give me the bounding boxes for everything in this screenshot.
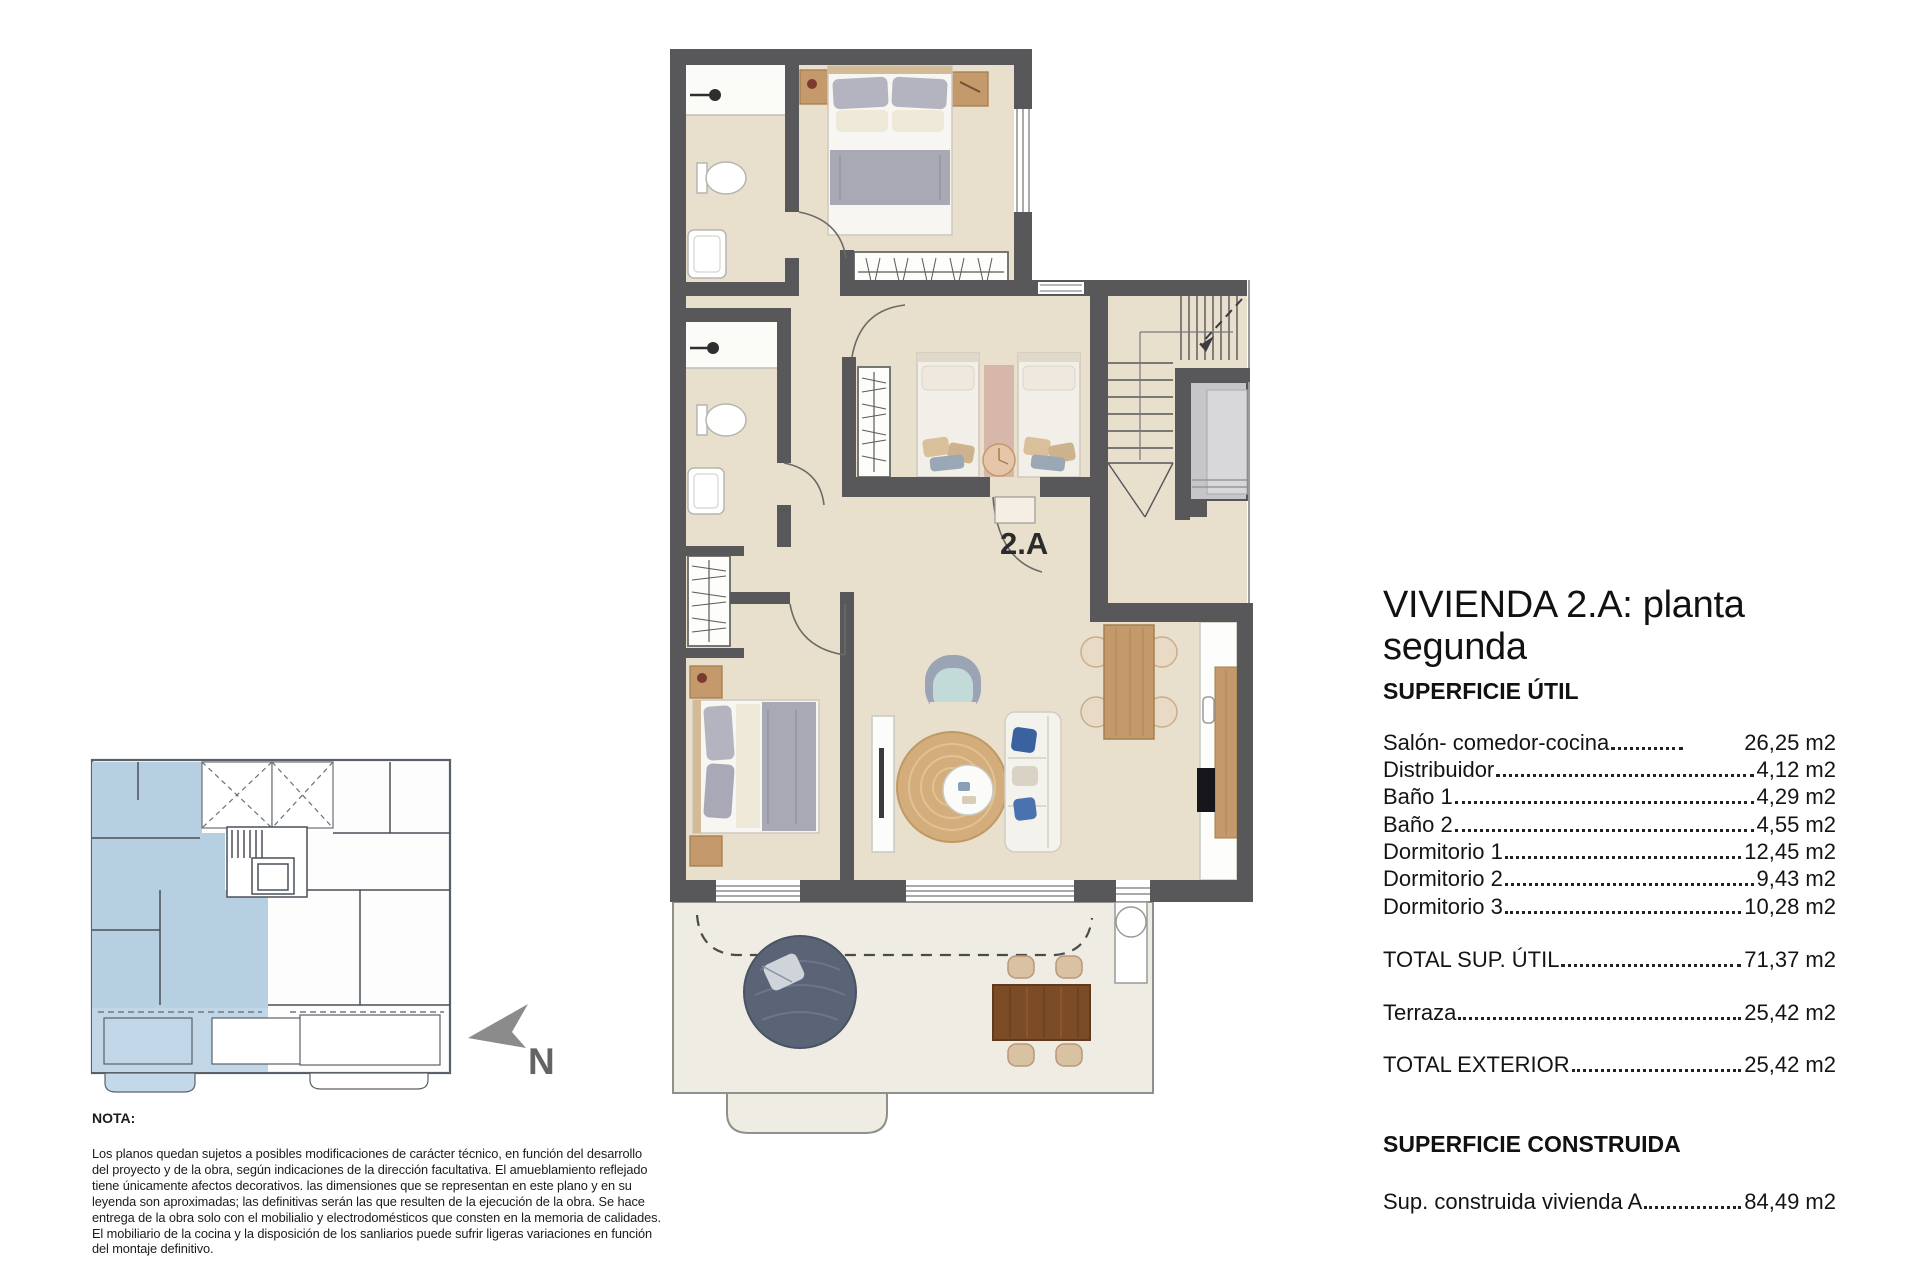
room-area-label: Baño 1 <box>1383 784 1453 810</box>
planter-box <box>1115 902 1147 983</box>
wardrobe-bedroom-2 <box>858 367 890 477</box>
glass-door-kitchen <box>1116 882 1150 900</box>
note-body: Los planos quedan sujetos a posibles mod… <box>92 1146 752 1257</box>
leader-dots <box>1505 856 1741 859</box>
room-area-value: 12,45 m2 <box>1744 839 1836 865</box>
room-area-list: Salón- comedor-cocina26,25 m2Distribuido… <box>1383 729 1836 920</box>
wicker-chair <box>1056 1044 1082 1066</box>
total-area-row: TOTAL SUP. ÚTIL71,37 m2 <box>1383 946 1836 973</box>
cooktop <box>1197 768 1215 812</box>
room-area-label: Dormitorio 1 <box>1383 839 1503 865</box>
bean-bag <box>744 936 856 1048</box>
leader-dots <box>1455 829 1754 832</box>
room-area-value: 4,12 m2 <box>1757 757 1837 783</box>
construida-area-label: Sup. construida vivienda A <box>1383 1189 1642 1215</box>
leader-dots <box>1611 747 1683 750</box>
armchair <box>925 655 981 716</box>
sofa <box>1005 712 1061 852</box>
room-area-label: Baño 2 <box>1383 812 1453 838</box>
construida-area-value: 84,49 m2 <box>1744 1189 1836 1215</box>
construida-area-row: Sup. construida vivienda A84,49 m2 <box>1383 1188 1836 1215</box>
leader-dots <box>1458 1017 1741 1020</box>
room-area-row: Salón- comedor-cocina26,25 m2 <box>1383 729 1836 756</box>
toilet-2 <box>706 404 746 436</box>
leader-dots <box>1505 911 1741 914</box>
north-arrow-label: N <box>528 1041 555 1082</box>
room-area-label: Dormitorio 2 <box>1383 866 1503 892</box>
total-area-row: Terraza25,42 m2 <box>1383 999 1836 1026</box>
leader-dots <box>1496 774 1753 777</box>
leader-dots <box>1505 883 1754 886</box>
room-area-row: Baño 24,55 m2 <box>1383 810 1836 837</box>
room-area-label: Salón- comedor-cocina <box>1383 730 1609 756</box>
key-plan-skylights <box>202 762 333 828</box>
tv-sideboard <box>872 716 894 852</box>
room-area-value: 4,29 m2 <box>1757 784 1837 810</box>
nightstand <box>690 836 722 866</box>
north-arrow: N <box>468 1004 555 1082</box>
leader-dots <box>1561 964 1741 967</box>
double-bed <box>828 66 952 235</box>
window-distributor <box>1038 282 1084 294</box>
key-plan-core <box>227 827 307 897</box>
terrace-table <box>993 985 1090 1040</box>
glass-door-terrace-1 <box>716 882 800 900</box>
shower-1 <box>686 65 785 115</box>
total-area-row: TOTAL EXTERIOR25,42 m2 <box>1383 1050 1836 1077</box>
single-bed <box>917 353 979 477</box>
nightstand <box>690 666 722 698</box>
single-bed <box>1018 353 1080 477</box>
north-arrow-icon <box>468 1004 528 1048</box>
room-area-row: Dormitorio 29,43 m2 <box>1383 865 1836 892</box>
note-block: NOTA: Los planos quedan sujetos a posibl… <box>92 1110 752 1257</box>
section-superficie-util: SUPERFICIE ÚTIL <box>1383 678 1836 705</box>
room-area-value: 9,43 m2 <box>1757 866 1837 892</box>
wicker-chair <box>1008 956 1034 978</box>
total-area-label: TOTAL SUP. ÚTIL <box>1383 947 1559 973</box>
glass-door-terrace-2 <box>906 882 1074 900</box>
key-plan <box>92 760 450 1092</box>
elevator <box>1190 382 1247 500</box>
section-superficie-construida: SUPERFICIE CONSTRUIDA <box>1383 1131 1836 1158</box>
room-area-row: Dormitorio 310,28 m2 <box>1383 892 1836 919</box>
toilet-1 <box>706 162 746 194</box>
leader-dots <box>1455 801 1754 804</box>
coffee-table <box>943 765 993 815</box>
leader-dots <box>1644 1206 1741 1209</box>
room-area-value: 10,28 m2 <box>1744 894 1836 920</box>
totals-list: TOTAL SUP. ÚTIL71,37 m2Terraza25,42 m2TO… <box>1383 946 1836 1078</box>
page-title: VIVIENDA 2.A: planta segunda <box>1383 585 1836 669</box>
nightstand <box>952 72 988 106</box>
room-area-label: Dormitorio 3 <box>1383 894 1503 920</box>
construida-list: Sup. construida vivienda A84,49 m2 <box>1383 1188 1836 1215</box>
dining-table <box>1104 625 1154 739</box>
total-area-label: TOTAL EXTERIOR <box>1383 1052 1570 1078</box>
room-area-value: 26,25 m2 <box>1744 730 1836 756</box>
window-bedroom-1 <box>1014 109 1032 212</box>
total-area-value: 25,42 m2 <box>1744 1000 1836 1026</box>
entry-step <box>995 497 1035 523</box>
wicker-chair <box>1056 956 1082 978</box>
total-area-value: 25,42 m2 <box>1744 1052 1836 1078</box>
shower-2 <box>686 322 777 368</box>
room-area-value: 4,55 m2 <box>1757 812 1837 838</box>
total-area-label: Terraza <box>1383 1000 1456 1026</box>
unit-label: 2.A <box>1000 526 1048 561</box>
room-area-row: Baño 14,29 m2 <box>1383 783 1836 810</box>
wardrobe-distributor <box>688 556 730 646</box>
note-heading: NOTA: <box>92 1110 752 1126</box>
shower-head-icon <box>707 342 719 354</box>
info-panel: VIVIENDA 2.A: planta segunda SUPERFICIE … <box>1383 585 1836 1215</box>
total-area-value: 71,37 m2 <box>1744 947 1836 973</box>
page: 2.A <box>0 0 1920 1280</box>
wicker-chair <box>1008 1044 1034 1066</box>
room-area-row: Distribuidor4,12 m2 <box>1383 756 1836 783</box>
room-area-label: Distribuidor <box>1383 757 1494 783</box>
leader-dots <box>1572 1069 1742 1072</box>
shower-head-icon <box>709 89 721 101</box>
room-area-row: Dormitorio 112,45 m2 <box>1383 838 1836 865</box>
kitchen <box>1197 622 1237 880</box>
kitchen-sink <box>1203 697 1214 723</box>
double-bed <box>693 700 819 833</box>
